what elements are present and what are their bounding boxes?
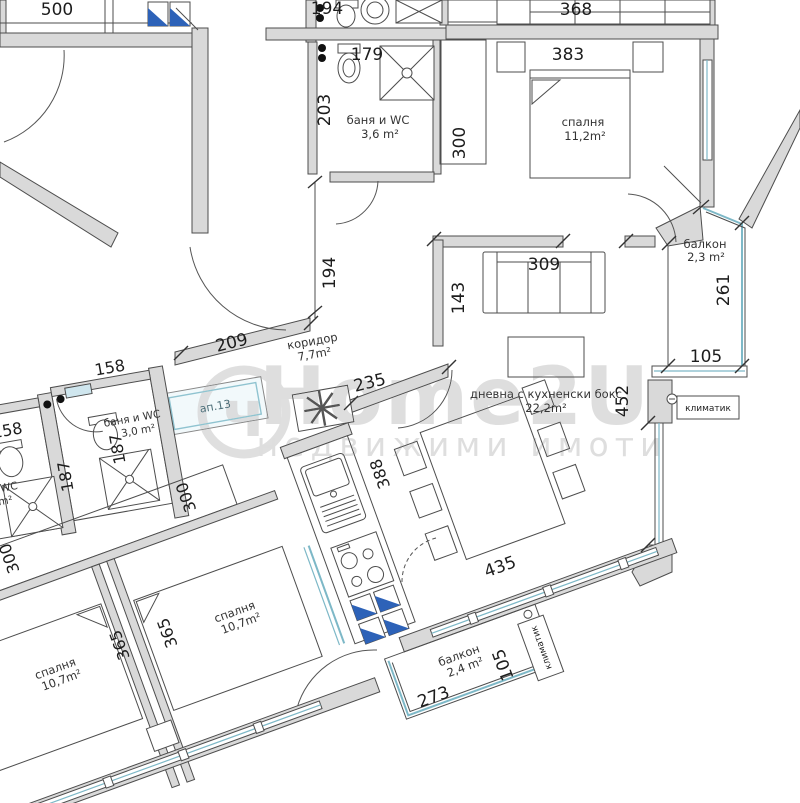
door-arc: [4, 50, 64, 142]
area-label-bath-top: 3,6 m²: [361, 127, 399, 141]
area-label-balcony-right: 2,3 m²: [687, 250, 725, 264]
dim-368: 368: [560, 0, 592, 20]
dim-194-corridor: 194: [320, 257, 340, 289]
bathrooms-left: 158 158 187 187 баня и WC 3,0 m² баня и …: [0, 349, 189, 555]
door-arc: [336, 181, 378, 224]
room-label-bedroom-top: спалня: [562, 115, 605, 129]
wardrobe-icon: [497, 0, 710, 24]
door-arc: [190, 247, 286, 330]
dim-273: 273: [415, 683, 452, 713]
shower-icon: [396, 0, 442, 23]
dim-194-top: 194: [311, 0, 343, 19]
room-label-bath-top: баня и WC: [347, 113, 410, 127]
watermark-tagline: недвижими имоти: [257, 425, 668, 464]
dim-300-clipped: 300: [0, 541, 23, 576]
kitchen-cabinet-icon: [148, 2, 198, 30]
dim-105-balcony-right: 105: [690, 347, 722, 367]
balcony-door-leaf: [664, 166, 701, 203]
floor-plan-page: ап.13: [0, 0, 800, 803]
dim-105-balcony-bottom: 105: [489, 646, 519, 683]
room-label-balcony-right: балкон: [684, 237, 727, 251]
dim-209: 209: [214, 330, 250, 357]
washing-machine-icon: [361, 0, 389, 24]
ac-unit: климатик: [514, 606, 563, 681]
ac-right-label: климатик: [685, 404, 731, 414]
dim-261: 261: [714, 274, 734, 306]
dim-500: 500: [41, 0, 73, 20]
nightstand-icon: [633, 42, 663, 72]
dim-300-wardrobe: 300: [450, 127, 470, 159]
nightstand-icon: [497, 42, 525, 72]
floor-plan: ап.13: [0, 0, 800, 803]
dim-143: 143: [449, 282, 469, 314]
watermark: ч Home2U недвижими имоти: [202, 350, 667, 464]
shower-icon: [380, 46, 434, 100]
area-label-bedroom-top: 11,2m²: [564, 129, 605, 143]
dim-383: 383: [552, 45, 584, 65]
dim-435: 435: [482, 552, 519, 582]
dim-179: 179: [351, 45, 383, 65]
shower-icon: [99, 449, 159, 509]
dim-203: 203: [315, 94, 335, 126]
dim-309: 309: [528, 255, 560, 275]
